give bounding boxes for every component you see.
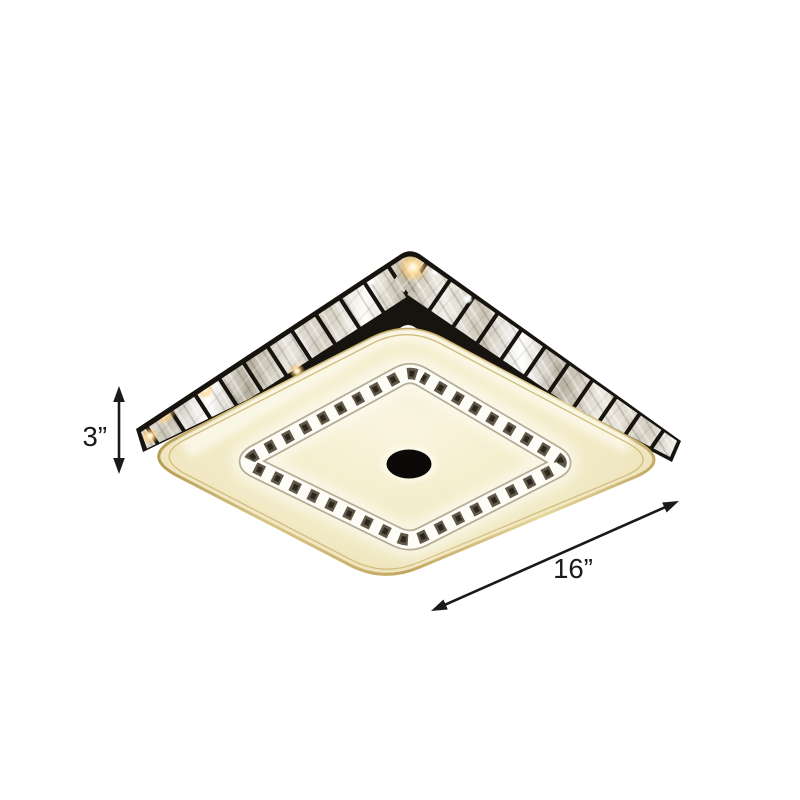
width-dimension-label: 16”: [553, 553, 593, 584]
arrow-down-head: [113, 458, 125, 474]
arrow-right-head: [662, 501, 679, 513]
ceiling-light-product-image: 3” 16”: [0, 0, 800, 800]
height-arrow: [113, 386, 125, 474]
arrow-up-head: [113, 386, 125, 402]
center-cap: [381, 445, 437, 483]
arrow-left-head: [431, 600, 448, 612]
height-dimension: 3”: [83, 386, 125, 474]
product-image-canvas: 3” 16”: [0, 0, 800, 800]
center-cap-dot: [387, 450, 432, 479]
height-dimension-label: 3”: [83, 421, 107, 452]
